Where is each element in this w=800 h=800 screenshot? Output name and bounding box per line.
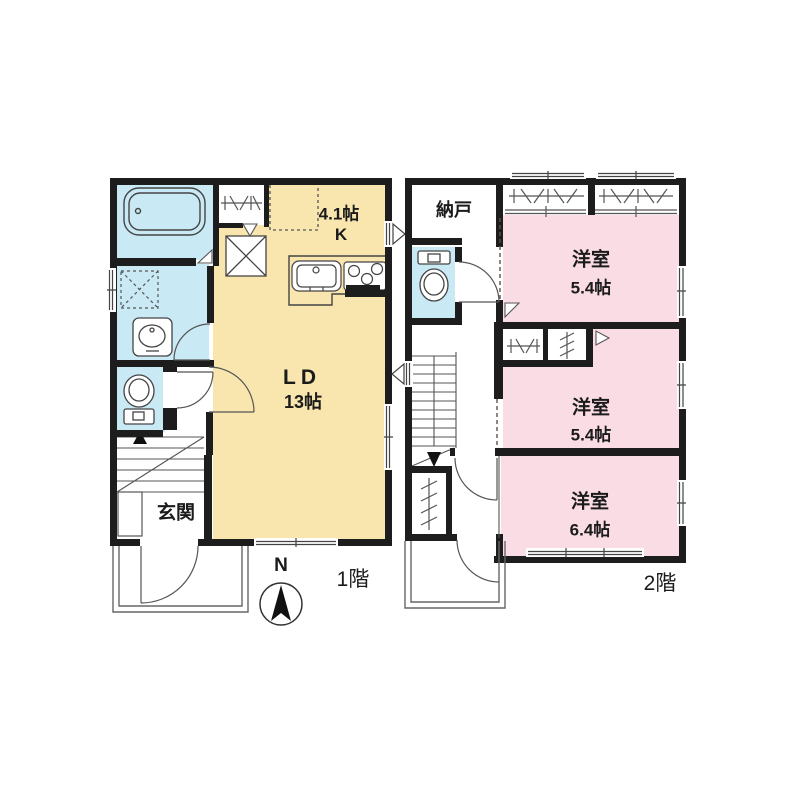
bedroom2-name-label: 洋室	[572, 393, 610, 420]
kitchen-sink-icon	[292, 261, 341, 291]
entrance-door-arc	[141, 546, 198, 603]
porch-2f	[405, 541, 505, 608]
vent-arrow-right	[393, 224, 405, 244]
floorplan-drawing	[0, 0, 800, 800]
ldk-room	[213, 181, 389, 541]
compass	[260, 583, 302, 625]
porch-1f	[113, 546, 248, 612]
living-size-label: 13帖	[284, 388, 322, 414]
floor2-label: 2階	[644, 567, 677, 597]
bedroom3-door-arc	[455, 458, 497, 500]
kitchen-size-label: 4.1帖	[319, 200, 360, 225]
kitchen-type-label: K	[335, 225, 347, 245]
vanity-icon	[133, 318, 172, 356]
toilet2-door-arc	[459, 262, 499, 302]
stairs-2f	[412, 352, 456, 466]
floor2-plan	[392, 171, 686, 608]
toilet2-icon	[418, 251, 450, 301]
bedroom1-size-label: 5.4帖	[571, 274, 612, 299]
bedroom1-name-label: 洋室	[572, 245, 610, 272]
vent-arrow-left	[392, 364, 404, 384]
floor1-label: 1階	[337, 563, 370, 593]
compass-north-label: N	[274, 555, 288, 577]
stairs-1f	[117, 437, 204, 492]
floorplan-image: 4.1帖 K LD 13帖 玄関 1階 N 納戸 洋室 5.4帖 洋室 5.4帖…	[0, 0, 800, 800]
entrance-label: 玄関	[157, 498, 195, 525]
toilet1-door-opening	[163, 372, 177, 408]
entrance-opening	[140, 538, 198, 547]
bedroom2-size-label: 5.4帖	[571, 421, 612, 446]
porch2-door-arc	[457, 540, 499, 582]
toilet1-door-arc	[177, 372, 213, 408]
bedroom3-name-label: 洋室	[571, 487, 609, 514]
storage-xbox-icon	[226, 236, 266, 276]
stairs-down-arrow	[427, 452, 441, 467]
living-type-label: LD	[283, 366, 321, 390]
toilet1-icon	[124, 375, 154, 424]
shoe-cabinet-icon	[118, 492, 142, 536]
bedroom3-size-label: 6.4帖	[570, 516, 611, 541]
floor1-plan	[107, 178, 405, 612]
storage-label: 納戸	[436, 196, 472, 222]
